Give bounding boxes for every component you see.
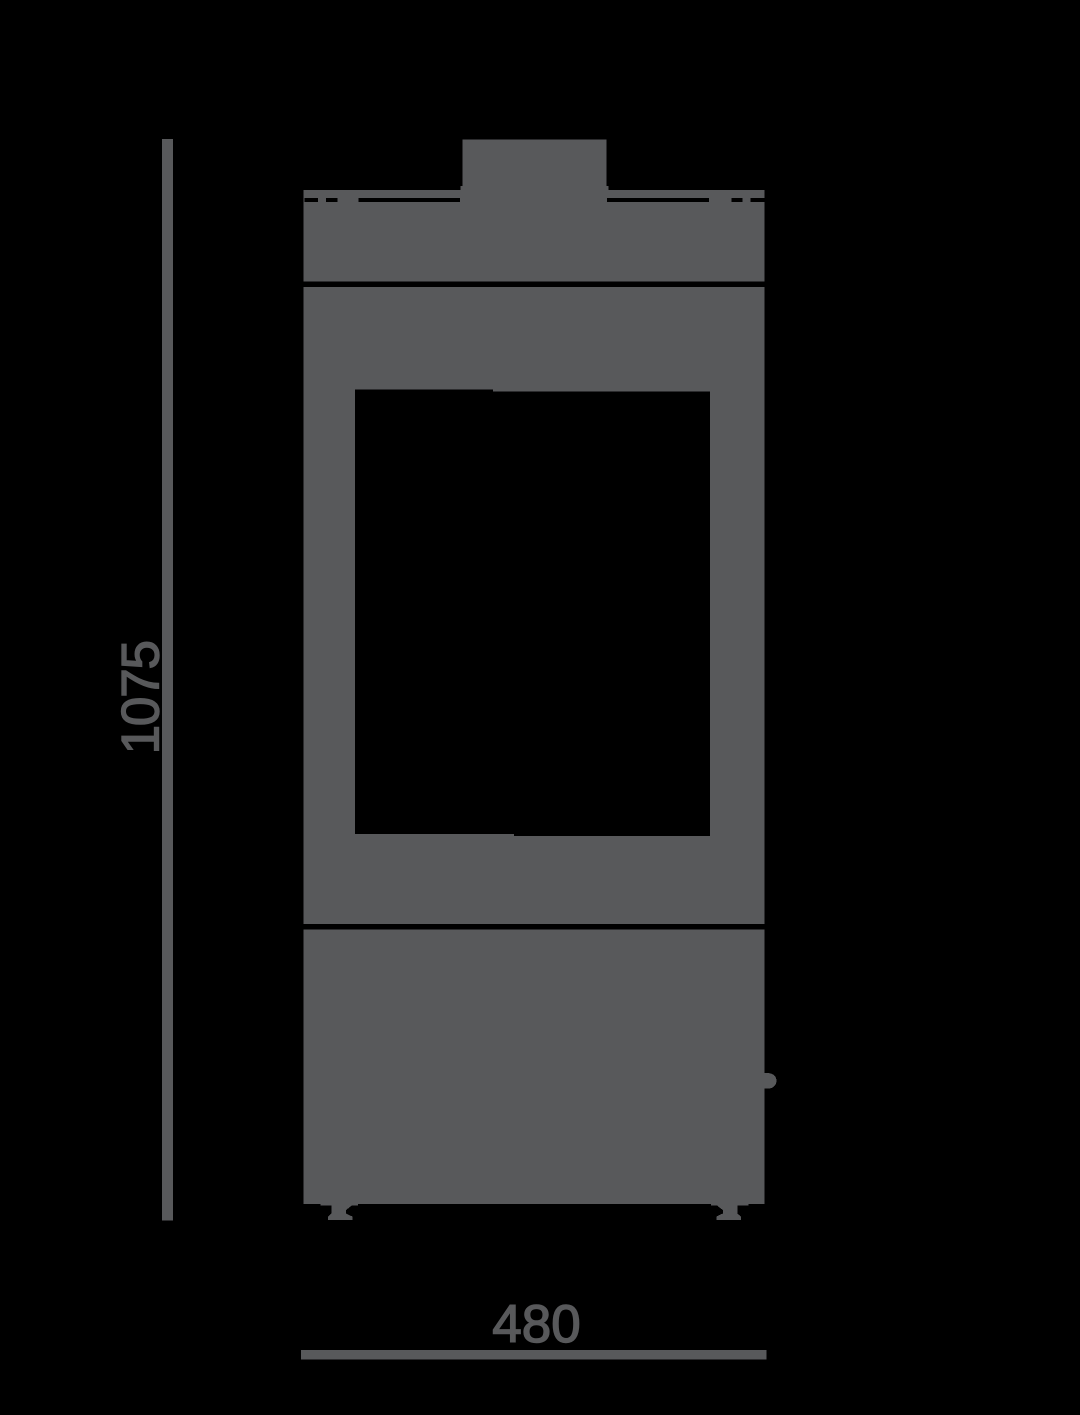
svg-text:480: 480	[492, 1295, 580, 1354]
svg-text:1075: 1075	[112, 641, 171, 754]
